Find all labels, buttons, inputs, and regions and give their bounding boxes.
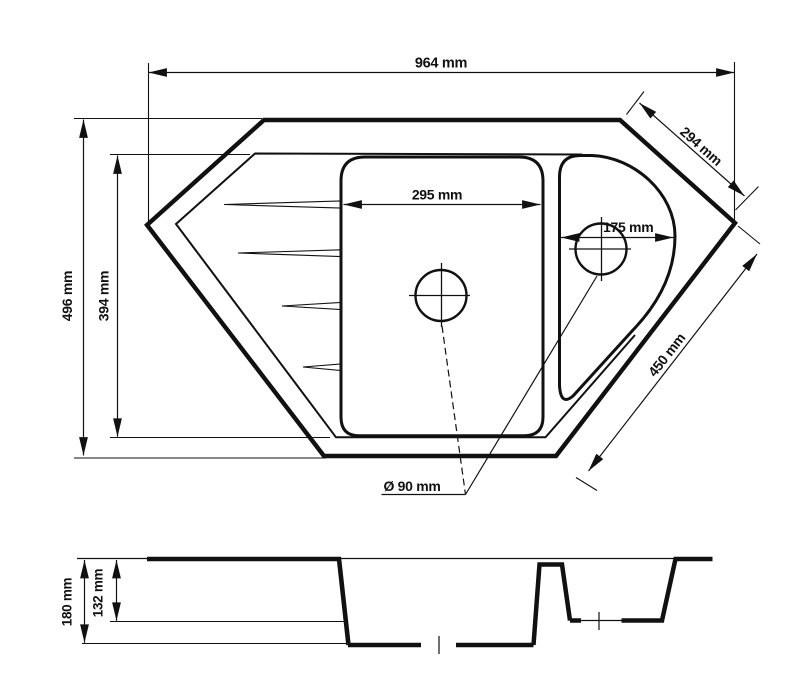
svg-text:Ø 90 mm: Ø 90 mm bbox=[384, 478, 441, 494]
svg-text:180 mm: 180 mm bbox=[60, 577, 75, 626]
svg-text:295 mm: 295 mm bbox=[412, 187, 462, 203]
svg-text:175 mm: 175 mm bbox=[603, 219, 653, 235]
svg-text:964 mm: 964 mm bbox=[415, 56, 467, 72]
svg-text:496 mm: 496 mm bbox=[59, 271, 75, 321]
svg-text:132 mm: 132 mm bbox=[91, 568, 106, 617]
svg-text:394 mm: 394 mm bbox=[96, 271, 112, 321]
